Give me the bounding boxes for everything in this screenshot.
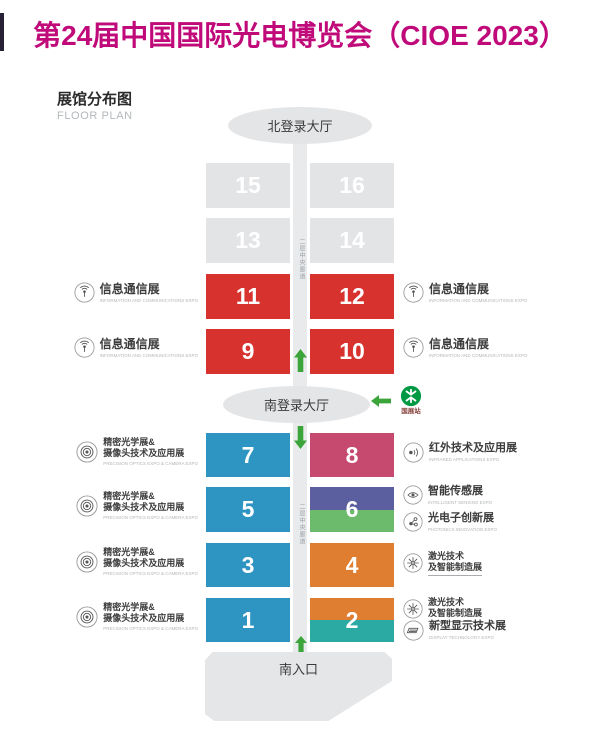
label-en: PHOTONICS INNOVATION EXPO: [428, 527, 497, 533]
up-arrow-corridor: [294, 349, 307, 372]
label-zh: 光电子创新展: [428, 512, 497, 526]
hall-9: 9: [206, 329, 290, 374]
label-zh1: 精密光学展&: [103, 602, 198, 613]
metro-logo-icon: [400, 385, 422, 407]
down-arrow-corridor: [294, 426, 307, 449]
hall-10: 10: [310, 329, 394, 374]
hall-4-number: 4: [346, 552, 359, 579]
label-en: PRECISION OPTICS EXPO & CAMERA EXPO: [103, 571, 198, 577]
hall-8-number: 8: [346, 442, 359, 469]
label-zh2: 摄像头技术及应用展: [103, 558, 198, 569]
infrared-waves-icon: [403, 442, 424, 463]
hall-1: 1: [206, 598, 290, 642]
hall-13: 13: [206, 218, 290, 263]
label-zh2: 及智能制造展: [428, 562, 482, 575]
camera-lens-icon: [76, 495, 98, 517]
left-arrow-metro: [371, 395, 391, 407]
molecule-icon: [403, 512, 423, 532]
hall-10-number: 10: [339, 338, 365, 365]
label-zh: 信息通信展: [100, 337, 198, 352]
camera-lens-icon: [76, 441, 98, 463]
hall-1-number: 1: [242, 607, 255, 634]
label-en: INFORMATION AND COMMUNICATIONS EXPO: [100, 298, 198, 304]
antenna-icon: [403, 337, 424, 358]
label-display-2: 新型显示技术展 DISPLAY TECHNOLOGY EXPO: [403, 620, 506, 641]
floor-plan-heading-zh: 展馆分布图: [57, 88, 133, 109]
hall-16: 16: [310, 163, 394, 208]
hall-9-number: 9: [242, 338, 255, 365]
north-lobby: 北登录大厅: [228, 107, 372, 144]
label-optics-7: 精密光学展& 摄像头技术及应用展 PRECISION OPTICS EXPO &…: [76, 437, 198, 466]
label-zh: 信息通信展: [429, 282, 527, 297]
hall-11: 11: [206, 274, 290, 319]
hall-13-number: 13: [235, 227, 261, 254]
south-entrance-label: 南入口: [279, 662, 318, 677]
hall-11-number: 11: [236, 283, 260, 310]
label-optics-3: 精密光学展& 摄像头技术及应用展 PRECISION OPTICS EXPO &…: [76, 547, 198, 576]
metro-station-name: 国展站: [395, 409, 427, 416]
metro-station: 国展站: [395, 385, 427, 416]
camera-lens-icon: [76, 551, 98, 573]
label-zh2: 摄像头技术及应用展: [103, 613, 198, 624]
hall-5: 5: [206, 487, 290, 532]
hall-16-number: 16: [339, 172, 365, 199]
label-en: DISPLAY TECHNOLOGY EXPO: [429, 635, 506, 641]
label-en: PRECISION OPTICS EXPO & CAMERA EXPO: [103, 461, 198, 467]
label-zh1: 精密光学展&: [103, 547, 198, 558]
up-arrow-south: [295, 636, 307, 653]
hall-5-number: 5: [242, 496, 255, 523]
label-optics-1: 精密光学展& 摄像头技术及应用展 PRECISION OPTICS EXPO &…: [76, 602, 198, 631]
label-zh: 智能传感展: [428, 485, 492, 499]
north-lobby-label: 北登录大厅: [267, 116, 332, 135]
label-en: PRECISION OPTICS EXPO & CAMERA EXPO: [103, 515, 198, 521]
south-entrance: 南入口: [205, 652, 392, 721]
camera-lens-icon: [76, 606, 98, 628]
hall-15-number: 15: [235, 172, 261, 199]
label-en: INFORMATION AND COMMUNICATIONS EXPO: [429, 353, 527, 359]
label-infrared-8: 红外技术及应用展 INFRARED APPLICATIONS EXPO: [403, 442, 517, 463]
hall-12-number: 12: [339, 283, 365, 310]
label-zh1: 精密光学展&: [103, 437, 198, 448]
label-en: PRECISION OPTICS EXPO & CAMERA EXPO: [103, 626, 198, 632]
hall-2-number: 2: [346, 607, 359, 634]
hall-2: 2: [310, 598, 394, 642]
label-zh: 信息通信展: [100, 282, 198, 297]
label-laser-2: 激光技术 及智能制造展: [403, 597, 482, 622]
hall-6-number: 6: [346, 496, 359, 523]
laser-starburst-icon: [403, 599, 423, 619]
hall-15: 15: [206, 163, 290, 208]
floor-plan-heading-en: FLOOR PLAN: [57, 110, 133, 122]
corridor-label-upper: 二层中央廊道: [297, 238, 306, 280]
label-laser-4: 激光技术 及智能制造展: [403, 551, 482, 576]
label-zh: 新型显示技术展: [429, 620, 506, 634]
south-lobby: 南登录大厅: [223, 386, 370, 423]
label-en: INTELLIGENT SENSING EXPO: [428, 500, 492, 506]
label-info-comm-11: 信息通信展 INFORMATION AND COMMUNICATIONS EXP…: [74, 282, 198, 304]
label-en: INFORMATION AND COMMUNICATIONS EXPO: [429, 298, 527, 304]
hall-14: 14: [310, 218, 394, 263]
label-zh1: 激光技术: [428, 597, 482, 608]
eye-icon: [403, 485, 423, 505]
hall-14-number: 14: [339, 227, 365, 254]
label-zh1: 精密光学展&: [103, 491, 198, 502]
label-zh2: 摄像头技术及应用展: [103, 448, 198, 459]
label-zh: 红外技术及应用展: [429, 442, 517, 456]
label-optics-5: 精密光学展& 摄像头技术及应用展 PRECISION OPTICS EXPO &…: [76, 491, 198, 520]
antenna-icon: [74, 282, 95, 303]
label-sensing-6: 智能传感展 INTELLIGENT SENSING EXPO: [403, 485, 492, 505]
label-photonics-6: 光电子创新展 PHOTONICS INNOVATION EXPO: [403, 512, 497, 532]
label-en: INFRARED APPLICATIONS EXPO: [429, 457, 517, 463]
floor-plan-heading: 展馆分布图 FLOOR PLAN: [57, 88, 133, 122]
label-en: INFORMATION AND COMMUNICATIONS EXPO: [100, 353, 198, 359]
hall-3-number: 3: [242, 552, 255, 579]
label-info-comm-10: 信息通信展 INFORMATION AND COMMUNICATIONS EXP…: [403, 337, 527, 359]
hall-6: 6: [310, 487, 394, 532]
south-lobby-label: 南登录大厅: [264, 395, 329, 414]
corridor-label-lower: 二层中央廊道: [297, 503, 306, 545]
page-title: 第24届中国国际光电博览会（CIOE 2023）: [0, 14, 600, 54]
antenna-icon: [74, 337, 95, 358]
label-info-comm-12: 信息通信展 INFORMATION AND COMMUNICATIONS EXP…: [403, 282, 527, 304]
hall-7-number: 7: [242, 442, 255, 469]
label-zh: 信息通信展: [429, 337, 527, 352]
display-screen-icon: [403, 620, 424, 641]
hall-3: 3: [206, 543, 290, 587]
hall-8: 8: [310, 433, 394, 477]
floor-plan-page: 第24届中国国际光电博览会（CIOE 2023） 展馆分布图 FLOOR PLA…: [0, 0, 600, 735]
laser-starburst-icon: [403, 553, 423, 573]
hall-4: 4: [310, 543, 394, 587]
hall-7: 7: [206, 433, 290, 477]
label-info-comm-9: 信息通信展 INFORMATION AND COMMUNICATIONS EXP…: [74, 337, 198, 359]
antenna-icon: [403, 282, 424, 303]
label-zh2: 摄像头技术及应用展: [103, 502, 198, 513]
hall-12: 12: [310, 274, 394, 319]
label-zh1: 激光技术: [428, 551, 482, 562]
